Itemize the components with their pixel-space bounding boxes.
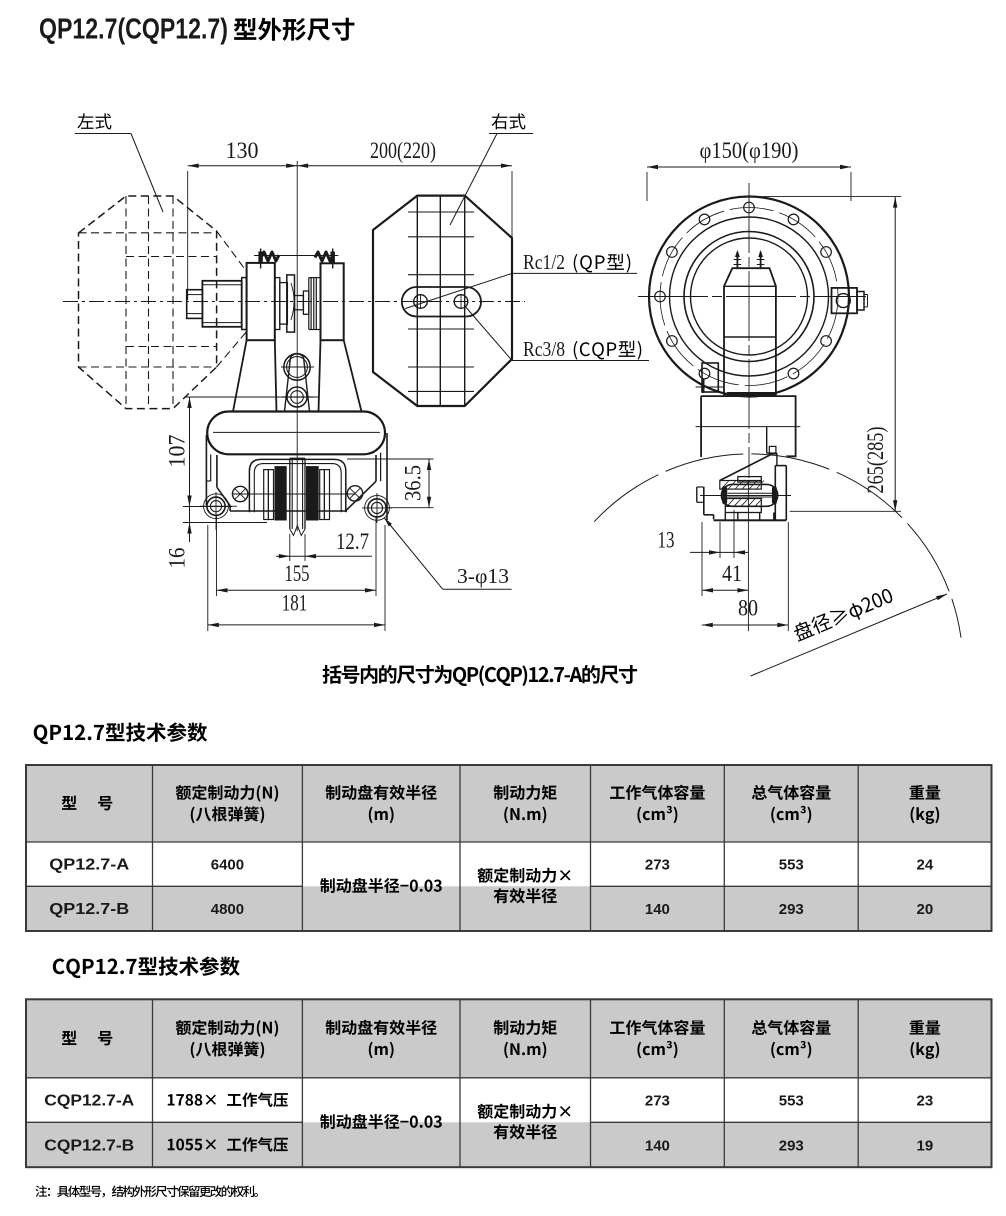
svg-text:CQP12.7-A: CQP12.7-A — [44, 1093, 134, 1110]
svg-text:23: 23 — [917, 1093, 934, 1110]
svg-text:293: 293 — [779, 901, 804, 918]
svg-text:φ150(φ190): φ150(φ190) — [700, 138, 799, 163]
svg-text:130: 130 — [226, 138, 259, 163]
svg-text:107: 107 — [165, 435, 190, 468]
svg-text:293: 293 — [779, 1137, 804, 1154]
svg-text:265(285): 265(285) — [863, 427, 888, 494]
svg-text:QP12.7-A: QP12.7-A — [49, 857, 130, 874]
svg-text:Rc1/2: Rc1/2 — [523, 250, 565, 274]
svg-text:12.7: 12.7 — [336, 529, 369, 554]
svg-text:16: 16 — [165, 548, 190, 569]
svg-text:181: 181 — [282, 591, 308, 616]
svg-text:24: 24 — [917, 857, 934, 874]
svg-text:13: 13 — [658, 528, 675, 553]
svg-text:155: 155 — [285, 561, 310, 586]
svg-text:553: 553 — [779, 857, 804, 874]
svg-text:553: 553 — [779, 1093, 804, 1110]
svg-text:273: 273 — [645, 1093, 670, 1110]
svg-text:41: 41 — [722, 561, 742, 586]
svg-text:Rc3/8: Rc3/8 — [523, 337, 565, 361]
svg-text:CQP12.7-B: CQP12.7-B — [44, 1137, 134, 1154]
svg-text:36.5: 36.5 — [401, 465, 426, 501]
svg-text:140: 140 — [645, 1137, 670, 1154]
svg-text:6400: 6400 — [211, 857, 244, 874]
svg-text:19: 19 — [917, 1137, 934, 1154]
svg-text:QP12.7-B: QP12.7-B — [49, 901, 129, 918]
svg-text:273: 273 — [645, 857, 670, 874]
svg-text:200(220): 200(220) — [370, 138, 436, 163]
svg-text:QP12.7(CQP12.7): QP12.7(CQP12.7) — [39, 14, 228, 46]
svg-text:4800: 4800 — [211, 901, 244, 918]
svg-text:140: 140 — [645, 901, 670, 918]
svg-text:3-φ13: 3-φ13 — [457, 564, 509, 588]
svg-text:20: 20 — [917, 901, 934, 918]
svg-text:80: 80 — [738, 596, 758, 621]
